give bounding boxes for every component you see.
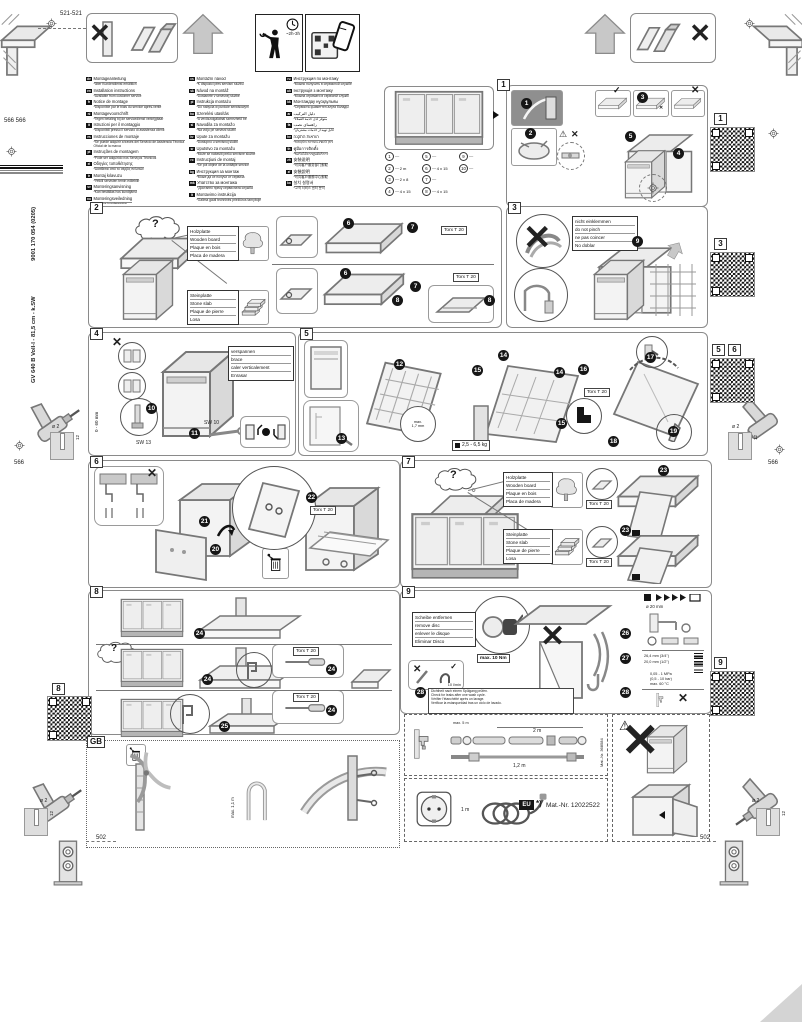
step-callout: 6 (343, 218, 354, 229)
socket-icon (413, 787, 455, 831)
language-entry: kkМонтаждау нұсқаулығы*Сервистік қызметт… (286, 100, 376, 110)
fast-forward-icons (644, 594, 702, 602)
parts-list: 1—2—2 m3—2 x 84—4 x 155—6—4 x 157—8—4 x … (385, 152, 493, 204)
clip-icon (244, 659, 264, 681)
cross-icon: ✕ (659, 106, 663, 111)
label-line: Plaque en bois (190, 244, 236, 252)
language-column-2: csMontážní návod*K dispozici přes servis… (189, 77, 282, 204)
language-entry: elΟδηγίες τοποθέτησης*Διατίθεται από το … (86, 162, 185, 172)
trash-icon (264, 550, 286, 576)
language-entry: srUputstvo za montažu*Može se nabaviti p… (189, 147, 282, 157)
torx-label: Torx T 20 (584, 388, 610, 397)
drill-depth-block: 12 (756, 808, 780, 836)
door-detail-box (511, 90, 563, 126)
eu-badge: EU (519, 800, 534, 810)
part-item: 4—4 x 15 (385, 187, 419, 196)
qr-3-label: 3 (714, 238, 727, 250)
pressure-value: 0,05 - 1 MPa (650, 672, 672, 677)
pinch-label-box: nicht einklemmen do not pinch ne pas coi… (572, 216, 638, 251)
cross-icon: ✕ (523, 221, 552, 255)
language-entry: enInstallation instructions*Available fr… (86, 89, 185, 99)
screw-mark-icon (14, 440, 25, 451)
bracket-screw-icon (591, 535, 613, 549)
brace-label-box: verspannen brace caler verticalement Enr… (228, 346, 294, 381)
bracket-top-icon (279, 279, 313, 305)
dim-502-left: 502 (96, 835, 106, 841)
step-5-badge: 5 (300, 328, 313, 340)
height-range-label: 0 - 60 mm (94, 390, 99, 432)
cabinet-variant-icon (120, 648, 184, 688)
aquastop-hose-icon (449, 733, 589, 747)
check-icon: ✓ (613, 86, 621, 95)
hose-max-length: max. 5 m (453, 721, 469, 726)
divider-line (272, 264, 494, 265)
level-pictogram-box (240, 416, 290, 448)
language-entry: roInstrucţiuni de montaj*Se pot obţine d… (189, 158, 282, 168)
installer-icon (257, 21, 289, 67)
hook-arrow-icon (573, 405, 595, 427)
part-item: 2—2 m (385, 164, 419, 173)
spine-order-number: 9001 170 054 (0205) (31, 207, 43, 261)
label-line: Wooden board (190, 236, 236, 244)
foot-icon (131, 403, 145, 431)
curved-arrow-icon (214, 520, 236, 540)
spine-barcode (0, 165, 63, 175)
part-item: 9— (459, 152, 493, 161)
language-entry: skNávod na montáž*Dostanete v servisnej … (189, 89, 282, 99)
step-4-badge: 4 (90, 328, 103, 340)
riser-height-label: max. 1,1 m (230, 768, 235, 818)
qr-8-label: 8 (52, 683, 65, 695)
tree-icon (239, 228, 266, 258)
language-column-3: ruИнструкция по монтажу*Можно получить в… (286, 77, 376, 204)
mounting-bracket-icon (718, 838, 750, 886)
label-line: verspannen (231, 348, 291, 356)
clamp-icon (561, 149, 580, 162)
drill-hole (766, 809, 771, 826)
drill-depth-block: 12 (728, 432, 752, 460)
step-callout: 23 (658, 465, 669, 476)
dispose-box (262, 548, 289, 579)
dishwasher-icon (112, 252, 184, 322)
language-entry: thคู่มือการติดตั้ง*ขอรับได้จากศูนย์บริกา… (286, 147, 376, 157)
screw-mark-icon (768, 128, 779, 139)
torx-label: Torx T 20 (293, 693, 319, 702)
label-line: No doblar (575, 242, 635, 249)
step-callout: 4 (673, 148, 684, 159)
step-callout: 24 (326, 664, 337, 675)
step-callout: 17 (645, 352, 656, 363)
mounting-bracket-icon (52, 838, 84, 886)
label-line: Scheibe entfernen (415, 614, 473, 622)
arrow-up-icon (182, 10, 224, 58)
label-line: Plaque en bois (506, 490, 550, 498)
language-entry: itIstruzioni per il montaggio*Disponibil… (86, 123, 185, 133)
time-estimate: ~2h-3h (286, 32, 300, 37)
screwdriver-icon (277, 701, 333, 715)
qr-6-label: 6 (728, 344, 741, 356)
scan-qr-box (305, 14, 360, 72)
drain-hose-riser-icon (238, 760, 286, 836)
hose-length-bottom: 1,2 m (513, 763, 526, 769)
step-callout: 2 (525, 128, 536, 139)
step-7-badge: 7 (402, 456, 415, 468)
step-2-badge: 2 (90, 202, 103, 214)
label-line: brace (231, 356, 291, 364)
wrong-panel-warning-box: ✕ (630, 13, 716, 63)
part-item: 8—4 x 15 (422, 187, 456, 196)
tap-small-icon (648, 692, 678, 708)
bricks-icon (239, 292, 266, 322)
step-callout: 6 (340, 268, 351, 279)
page-curl (760, 984, 802, 1022)
sw13-label: SW 13 (136, 440, 151, 446)
step-1-badge: 1 (497, 79, 510, 91)
check-icon: ✓ (450, 663, 457, 671)
door-open-warning-box: ⚠ ✕ (612, 714, 710, 842)
leak-check-box: Dichtheit nach einem Spülgang prüfen. Ch… (428, 688, 574, 714)
plinth-corner-icon (348, 648, 394, 690)
plinth-rail-icon (196, 596, 314, 644)
step-callout: 24 (202, 674, 213, 685)
part-item: 3—2 x 8 (385, 175, 419, 184)
wood-icon-box (550, 472, 583, 508)
question-mark: ? (152, 219, 159, 230)
step-callout: 15 (472, 365, 483, 376)
language-entry: zf安裝說明*可向客戶服務中心索取 (286, 170, 376, 180)
step-callout: 19 (668, 426, 679, 437)
cross-icon: ✕ (112, 336, 122, 348)
part-item: 5— (422, 152, 456, 161)
qr-code-9 (710, 671, 755, 716)
wire-grid-icon (648, 262, 698, 318)
language-entry: ko설치 설명서*고객 서비스 센터 문의 (286, 181, 376, 191)
step-callout: 24 (326, 705, 337, 716)
language-entry: esInstrucciones de montaje*Se puede adqu… (86, 135, 185, 149)
torx-label: Torx T 20 (586, 500, 612, 509)
screwdriver-icon (277, 655, 333, 669)
language-entry: slNavodila za montažo*Na voljo pri servi… (189, 123, 282, 133)
step-callout: 13 (336, 433, 347, 444)
dim-566-right: 566 (768, 460, 778, 466)
stone-label-box: Steinplatte Stone slab Plaque de pierre … (503, 529, 553, 564)
language-entry: faراهنمای نصب*قابل تهیه از خدمات مشتریان (286, 123, 376, 133)
arrow-left-icon (659, 811, 665, 819)
drill-depth: 12 (49, 811, 54, 816)
drill-depth: 12 (781, 811, 786, 816)
weight-icon (455, 443, 460, 448)
cross-icon: ✕ (678, 692, 688, 704)
panel-gap-icon (123, 378, 141, 394)
language-entry: frNotice de montage*Disponible par le bi… (86, 100, 185, 110)
manual-page: 521-521 ✕ ~2h-3h ✕ 566 566 GV 640 B Voll… (0, 0, 802, 1022)
door-open-icon (516, 93, 558, 123)
drain-hose-icon (449, 751, 589, 763)
label-line: ne pas coincer (575, 234, 635, 242)
language-entry: arدليل التركيب*متوفر لدى خدمة العملاء (286, 112, 376, 122)
language-entry: ruИнструкция по монтажу*Можно получить в… (286, 77, 376, 87)
door-panel-screws-icon (241, 475, 307, 541)
step-callout: 11 (189, 428, 200, 439)
wood-label-box: Holzplatte Wooden board Plaque en bois P… (503, 472, 553, 507)
part-item: 7— (422, 175, 456, 184)
kitchen-front-icon (389, 90, 489, 146)
step-callout: 28 (620, 687, 631, 698)
drill-diameter: ø 2 (752, 798, 759, 804)
label-line: Wooden board (506, 482, 550, 490)
step-callout: 10 (146, 403, 157, 414)
language-entry: heהוראות התקנה*ניתן להשיג בשירות הלקוחות (286, 135, 376, 145)
stone-icon-box (550, 529, 583, 565)
qr-1-label: 1 (714, 113, 727, 125)
gap-right-circle (118, 372, 146, 400)
dishwasher-icon (584, 252, 654, 322)
label-line: Losa (506, 555, 550, 562)
language-entry: deMontageanleitung*über Kundendienst erh… (86, 77, 185, 87)
qr-5-label: 5 (712, 344, 725, 356)
step-callout: 1 (521, 98, 532, 109)
step-callout: 25 (219, 721, 230, 732)
remove-disc-label-box: Scheibe entfernen remove disc enlever le… (412, 612, 476, 647)
cable-length: 1 m (461, 807, 469, 813)
weight-value: 2,5 - 6,5 kg (462, 441, 487, 450)
language-entry: hrUpute za montažu*Dostupno u servisnoj … (189, 135, 282, 145)
door-tilt-icon (620, 544, 680, 584)
cross-icon: ✕ (413, 665, 421, 675)
label-line: Placa de madera (506, 498, 550, 505)
appliance-front-icon (309, 345, 343, 393)
cable-icon (519, 275, 563, 315)
step-callout: 28 (415, 687, 426, 698)
language-entry: csMontážní návod*K dispozici přes servis… (189, 77, 282, 87)
section-1-box: 1 2 ⚠ ✕ ✓ 3 ✕ ✕ 5 (506, 85, 708, 207)
language-entry: huSzerelési utasítás*A vevőszolgálatnál … (189, 112, 282, 122)
leader-line (38, 28, 86, 29)
temperature-max: max. 60 °C (650, 682, 669, 687)
panel-weight-label: 2,5 - 6,5 kg (452, 440, 490, 451)
tree-icon (552, 474, 580, 505)
hose-length-top: 2 m (531, 728, 543, 734)
sw10-label: SW 10 (204, 420, 219, 426)
drill-diameter: ø 2 (732, 424, 739, 430)
phone-scan-icon (308, 17, 357, 68)
qr-code-5-6 (710, 358, 755, 403)
hand-tighten-box: ✕ ✓ 10 l/min (408, 660, 464, 690)
label-line: Stone slab (190, 300, 236, 308)
step-callout: 12 (394, 359, 405, 370)
step-callout: 7 (410, 281, 421, 292)
step-callout: 9 (632, 236, 643, 247)
drill-hole (34, 809, 39, 826)
qr-code-8 (47, 696, 92, 741)
gb-badge: GB (87, 736, 105, 748)
pressure-range: (0,5 - 10 bar) (650, 677, 672, 682)
leak-line: Verificar la estanqueidad tras un ciclo … (431, 702, 571, 706)
label-line: Losa (190, 316, 236, 323)
torx-label: Torx T 20 (586, 558, 612, 567)
step-callout: 7 (407, 222, 418, 233)
step-callout: 22 (306, 492, 317, 503)
gap-wrong-circle (118, 342, 146, 370)
torx-label: Torx T 20 (310, 506, 336, 515)
step-callout: 16 (578, 364, 589, 375)
gap-spec-circle: max. 1,7 mm (400, 406, 436, 442)
drill-diameter: ø 2 (40, 798, 47, 804)
language-entry: ltMontavimo instrukcija*Galima gauti tec… (189, 193, 282, 203)
gap-line2: 1,7 mm (412, 424, 425, 428)
language-entry: svMonteringsanvisning*Kan beställas hos … (86, 185, 185, 195)
label-line: Plaque de pierre (190, 308, 236, 316)
power-cable-box: 1 m EU *) Mat.-Nr. 12022522 (404, 778, 608, 842)
cross-icon: ✕ (689, 20, 711, 46)
step-callout: 23 (620, 525, 631, 536)
language-entry: ptInstruções de montagem*Pode ser adquir… (86, 150, 185, 160)
step-3-badge: 3 (508, 202, 521, 214)
step-callout: 3 (637, 92, 648, 103)
language-entry: mkУпатство за монтажа*Достапно преку сер… (189, 181, 282, 191)
torx-label: Torx T 20 (453, 273, 479, 282)
part-item: 6—4 x 15 (422, 164, 456, 173)
clock-icon (286, 18, 299, 31)
fixing-detail-box (276, 216, 318, 258)
part-item: 1— (385, 152, 419, 161)
kitchen-overview-box (384, 86, 494, 150)
drill-depth-block: 12 (50, 432, 74, 460)
corner-mark-icon (308, 405, 354, 447)
step-callout: 8 (392, 295, 403, 306)
footnote-mark: *) (536, 799, 542, 808)
hook-detail-circle (566, 398, 602, 434)
step-callout: 18 (608, 436, 619, 447)
arrow-up-icon (584, 10, 626, 58)
cabinet-variant-icon (120, 598, 184, 638)
pinch-warning-circle: ✕ (516, 214, 570, 268)
label-line: Eliminar Disco (415, 638, 473, 645)
step-callout: 26 (620, 628, 631, 639)
part-item: 10— (459, 164, 493, 173)
screw-mark-icon (744, 18, 755, 29)
drill-icon (5, 753, 94, 842)
dim-502-right: 502 (700, 835, 710, 841)
panels-icon (631, 14, 681, 60)
pressure-scale-icon (694, 653, 703, 673)
step-callout: 14 (498, 350, 509, 361)
glue-detail-box (428, 285, 494, 323)
step-6-badge: 6 (90, 456, 103, 468)
hole-diameter: ø 20 mm (646, 605, 663, 610)
wrench-icon (205, 425, 245, 441)
qr-9-label: 9 (714, 657, 727, 669)
cross-icon: ✕ (691, 86, 699, 96)
drill-depth: 12 (75, 435, 80, 440)
cross-icon: ✕ (89, 20, 111, 46)
label-line: Enrasar (231, 372, 291, 379)
cross-icon: ✕ (540, 622, 565, 652)
bracket-screw-icon (591, 477, 613, 491)
wrong-panel-warning-box: ✕ (86, 13, 178, 63)
cabinet-door-icon (623, 777, 703, 837)
hose-mat-number: Mat.-Nr. 368584 (599, 723, 604, 767)
step-callout: 8 (484, 295, 495, 306)
label-line: do not pinch (575, 226, 635, 234)
faucet-row-icon (646, 636, 700, 646)
clip-detail-circle (170, 694, 210, 734)
language-entry: ukІнструкція з монтажу*Можна отримати в … (286, 89, 376, 99)
step-callout: 21 (199, 516, 210, 527)
clip-icon (179, 702, 201, 726)
label-line: caler verticalement (231, 364, 291, 372)
water-connection-specs: ø 20 mm 26,4 mm (3/4") 20,0 mm (1/2") 0,… (642, 592, 706, 710)
label-line: Plaque de pierre (506, 547, 550, 555)
question-mark: ? (111, 644, 117, 654)
language-entry: bgИнструкция за монтаж*Може да се получи… (189, 170, 282, 180)
cross-icon: ✕ (571, 130, 579, 139)
counter-icon (597, 93, 628, 113)
screw-detail-circle (639, 174, 667, 202)
hose-extension-box: max. 5 m 2 m 1,2 m Mat.-Nr. 368584 (404, 714, 608, 776)
drill-depth: 12 (753, 435, 758, 440)
level-adjust-icon (244, 421, 286, 443)
divider-line (642, 689, 704, 690)
label-line: Steinplatte (190, 292, 236, 300)
label-line: Steinplatte (506, 531, 550, 539)
language-entry: nlMontagevoorschrift*Tegen betaling bij … (86, 112, 185, 122)
door-detail-magnifier (232, 466, 316, 550)
warning-icon: ⚠ (559, 130, 567, 139)
clamp-detail-circle (557, 142, 585, 170)
pipe-clamp-icon (300, 752, 390, 840)
screw-mark-icon (647, 182, 659, 194)
question-mark: ? (450, 470, 457, 481)
drill-hole (60, 433, 65, 450)
step-9-badge: 9 (402, 586, 415, 598)
torque-label: max. 10 Nm (477, 654, 510, 663)
dim-566-566: 566 566 (4, 118, 26, 124)
qr-code-3 (710, 252, 755, 297)
wood-label-box: Holzplatte Wooden board Plaque en bois P… (187, 226, 239, 261)
thread-size-large: 26,4 mm (3/4") (644, 654, 669, 659)
label-line: enlever le disque (415, 630, 473, 638)
drill-depth-block: 12 (24, 808, 48, 836)
thread-size-small: 20,0 mm (1/2") (644, 660, 669, 665)
worktop-corner-diagram-right (752, 6, 802, 78)
front-view-box (304, 340, 348, 398)
step-callout: 15 (556, 418, 567, 429)
drill-diameter: ø 2 (52, 424, 59, 430)
qr-code-1 (710, 127, 755, 172)
mark-drill-box (303, 400, 359, 452)
label-line: remove disc (415, 622, 473, 630)
divider-line (96, 644, 392, 645)
torx-label: Torx T 20 (293, 647, 319, 656)
power-mat-number: Mat.-Nr. 12022522 (546, 802, 600, 809)
bracket-top-icon (279, 225, 313, 251)
wood-icon-box (237, 226, 269, 261)
step-8-badge: 8 (90, 586, 103, 598)
dim-566-left: 566 (14, 460, 24, 466)
divider-line (96, 690, 392, 691)
language-list: deMontageanleitung*über Kundendienst erh… (86, 77, 368, 204)
label-line: nicht einklemmen (575, 218, 635, 226)
label-line: Stone slab (506, 539, 550, 547)
language-entry: zh安装说明*可向客户服务部门索取 (286, 158, 376, 168)
language-entry: trMontaj kılavuzu*Yetkili servisten temi… (86, 174, 185, 184)
screw-mark-icon (6, 146, 17, 157)
install-wrong-box (671, 90, 705, 117)
step-callout: 5 (625, 131, 636, 142)
counter-icon (673, 93, 702, 113)
hose-through-icon (646, 612, 700, 634)
